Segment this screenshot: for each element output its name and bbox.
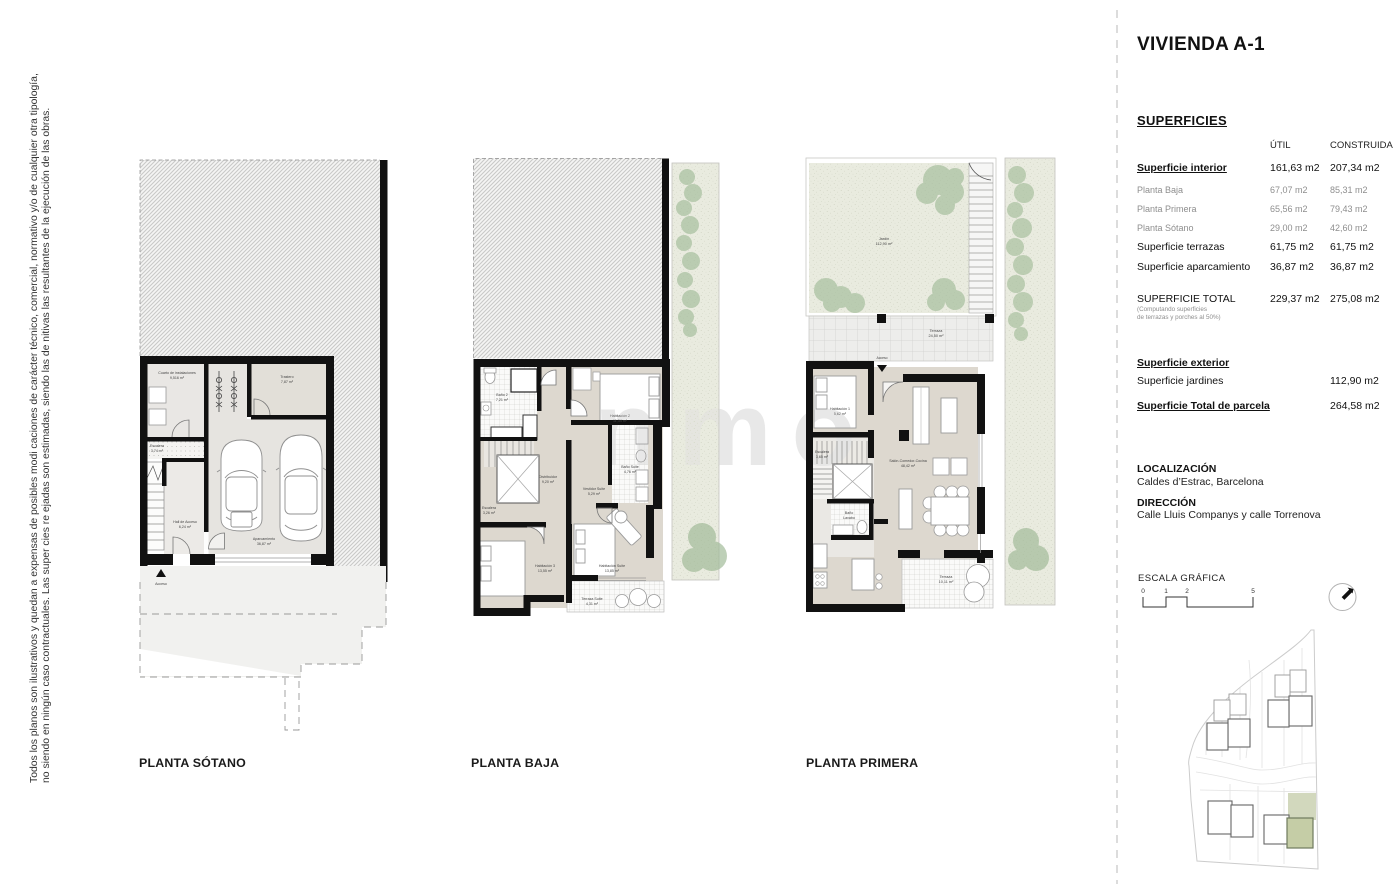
svg-text:Escalera: Escalera — [482, 506, 496, 510]
svg-text:1: 1 — [1164, 588, 1168, 595]
svg-text:3,74 m²: 3,74 m² — [151, 449, 164, 453]
svg-text:5,29 m²: 5,29 m² — [588, 492, 601, 496]
svg-text:6,24 m²: 6,24 m² — [179, 525, 192, 529]
svg-text:Trastero: Trastero — [280, 375, 293, 379]
svg-text:Acceso: Acceso — [876, 356, 887, 360]
svg-text:10,11 m²: 10,11 m² — [939, 580, 954, 584]
svg-text:Terraza: Terraza — [940, 575, 954, 579]
svg-text:Jardín: Jardín — [879, 237, 890, 241]
svg-text:13,85 m²: 13,85 m² — [605, 569, 620, 573]
svg-text:36,87 m²: 36,87 m² — [257, 542, 272, 546]
svg-text:Lavabo: Lavabo — [843, 516, 855, 520]
svg-text:Salón-Comedor-Cocina: Salón-Comedor-Cocina — [889, 459, 927, 463]
svg-text:Baño 2: Baño 2 — [496, 393, 507, 397]
svg-text:9,516 m²: 9,516 m² — [170, 376, 185, 380]
svg-text:Terraza Suite: Terraza Suite — [581, 597, 602, 601]
svg-text:Habitación 3: Habitación 3 — [535, 564, 555, 568]
svg-text:PLANTA PRIMERA: PLANTA PRIMERA — [806, 756, 918, 770]
svg-text:5: 5 — [1251, 588, 1255, 595]
svg-text:Cuarto de instalaciones: Cuarto de instalaciones — [158, 371, 196, 375]
svg-text:PLANTA SÓTANO: PLANTA SÓTANO — [139, 755, 246, 770]
svg-text:inmo: inmo — [545, 371, 876, 488]
svg-text:Escalera: Escalera — [150, 444, 164, 448]
svg-text:Aparcamiento: Aparcamiento — [253, 537, 275, 541]
svg-text:24,50 m²: 24,50 m² — [929, 334, 945, 338]
svg-text:PLANTA BAJA: PLANTA BAJA — [471, 756, 559, 770]
svg-text:Hall de Acceso: Hall de Acceso — [173, 520, 197, 524]
svg-text:4,31 m²: 4,31 m² — [586, 602, 599, 606]
svg-text:Habitación Suite: Habitación Suite — [599, 564, 625, 568]
svg-text:3,26 m²: 3,26 m² — [483, 511, 496, 515]
svg-text:Baño: Baño — [845, 511, 853, 515]
svg-text:13,55 m²: 13,55 m² — [538, 569, 553, 573]
svg-text:Terraza: Terraza — [930, 329, 944, 333]
svg-text:7,21 m²: 7,21 m² — [496, 398, 509, 402]
svg-text:Acceso: Acceso — [155, 582, 167, 586]
svg-text:112,90 m²: 112,90 m² — [876, 242, 894, 246]
svg-text:2: 2 — [1185, 588, 1189, 595]
svg-text:7,87 m²: 7,87 m² — [281, 380, 294, 384]
svg-text:48,42 m²: 48,42 m² — [901, 464, 916, 468]
svg-text:0: 0 — [1141, 588, 1145, 595]
